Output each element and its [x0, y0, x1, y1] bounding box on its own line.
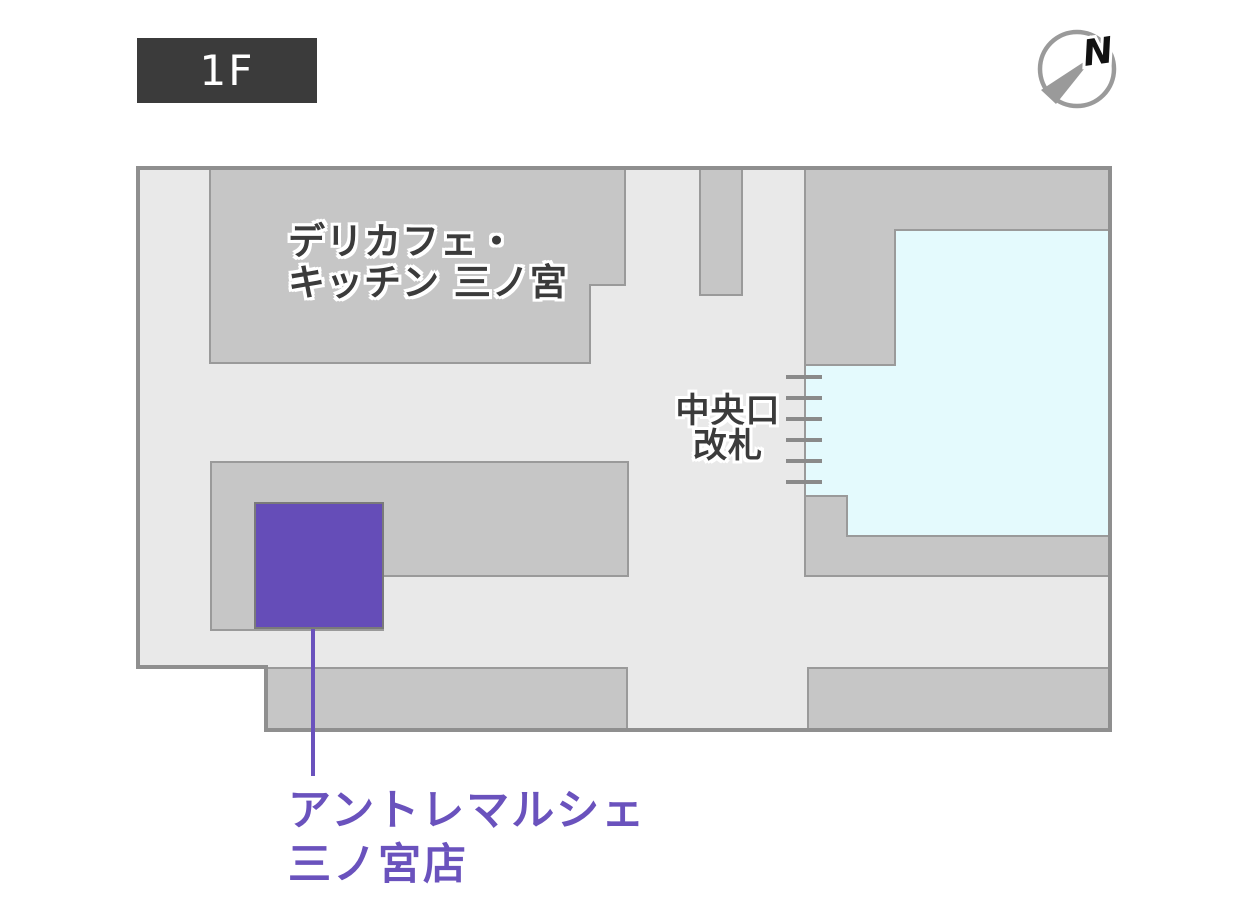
store-highlight-block: [255, 503, 383, 628]
store-name-label-line2: 三ノ宮店: [288, 838, 646, 892]
structure-block-bottom-left: [266, 668, 627, 730]
central-gate-label: 中央口 改札: [650, 394, 806, 464]
shop-label-delicafe: デリカフェ・ キッチン 三ノ宮: [288, 221, 568, 303]
compass-icon: N: [1040, 30, 1116, 106]
structure-block-center-top: [700, 168, 742, 295]
central-gate-label-line1: 中央口: [650, 394, 806, 429]
shop-label-delicafe-line1: デリカフェ・: [288, 221, 568, 262]
central-gate-label-line2: 改札: [650, 429, 806, 464]
store-name-label: アントレマルシェ 三ノ宮店: [288, 784, 646, 892]
compass-north-label: N: [1080, 30, 1116, 75]
floor-map-canvas: N: [0, 0, 1248, 920]
structure-block-bottom-right: [808, 668, 1110, 730]
floor-map-page: 1F: [0, 0, 1248, 920]
shop-label-delicafe-line2: キッチン 三ノ宮: [288, 262, 568, 303]
store-name-label-line1: アントレマルシェ: [288, 784, 646, 838]
